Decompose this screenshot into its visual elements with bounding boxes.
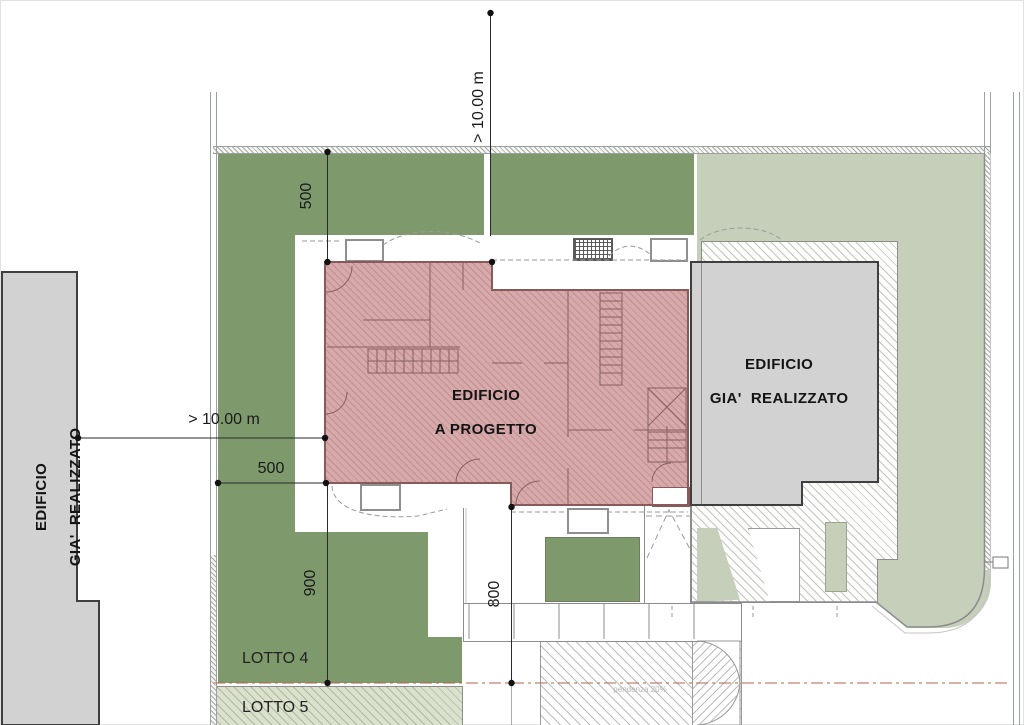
lot-edge-outer bbox=[872, 153, 991, 633]
outline-existing-right bbox=[691, 262, 878, 505]
offset-label-top: 500 bbox=[298, 166, 316, 226]
setback-label-left: > 10.00 m bbox=[164, 411, 284, 429]
lot-label-5: LOTTO 5 bbox=[242, 699, 308, 717]
depth-label-center: 800 bbox=[486, 564, 504, 624]
offset-label-left: 500 bbox=[241, 460, 301, 478]
ramp-arrows bbox=[646, 510, 691, 558]
dimension-dots bbox=[75, 10, 515, 686]
building-label-existing-left: EDIFICIO GIA' REALIZZATO bbox=[16, 401, 52, 611]
site-plan: > 10.00 m 500 > 10.00 m 500 900 800 EDIF… bbox=[0, 0, 1024, 725]
setback-label-top: > 10.00 m bbox=[470, 37, 488, 177]
plan-linework bbox=[0, 0, 1024, 725]
label-line2: GIA' REALIZZATO bbox=[710, 390, 849, 407]
building-label-existing-right: EDIFICIO GIA' REALIZZATO bbox=[670, 339, 870, 373]
boundary-lines bbox=[211, 92, 1020, 725]
gate-marker bbox=[985, 557, 1008, 568]
label-line1: EDIFICIO bbox=[745, 356, 813, 373]
building-label-project: EDIFICIO A PROGETTO bbox=[392, 370, 562, 404]
lot-label-4: LOTTO 4 bbox=[242, 650, 308, 668]
depth-label-left: 900 bbox=[302, 553, 320, 613]
dimension-lines bbox=[78, 13, 512, 683]
slope-note: pendenza 20% bbox=[585, 685, 695, 695]
label-line2: A PROGETTO bbox=[435, 421, 537, 438]
label-line2: GIA' REALIZZATO bbox=[67, 428, 84, 567]
label-line1: EDIFICIO bbox=[33, 463, 50, 531]
axis-ticks bbox=[672, 606, 837, 620]
paving-border bbox=[691, 242, 898, 603]
label-line1: EDIFICIO bbox=[452, 387, 520, 404]
